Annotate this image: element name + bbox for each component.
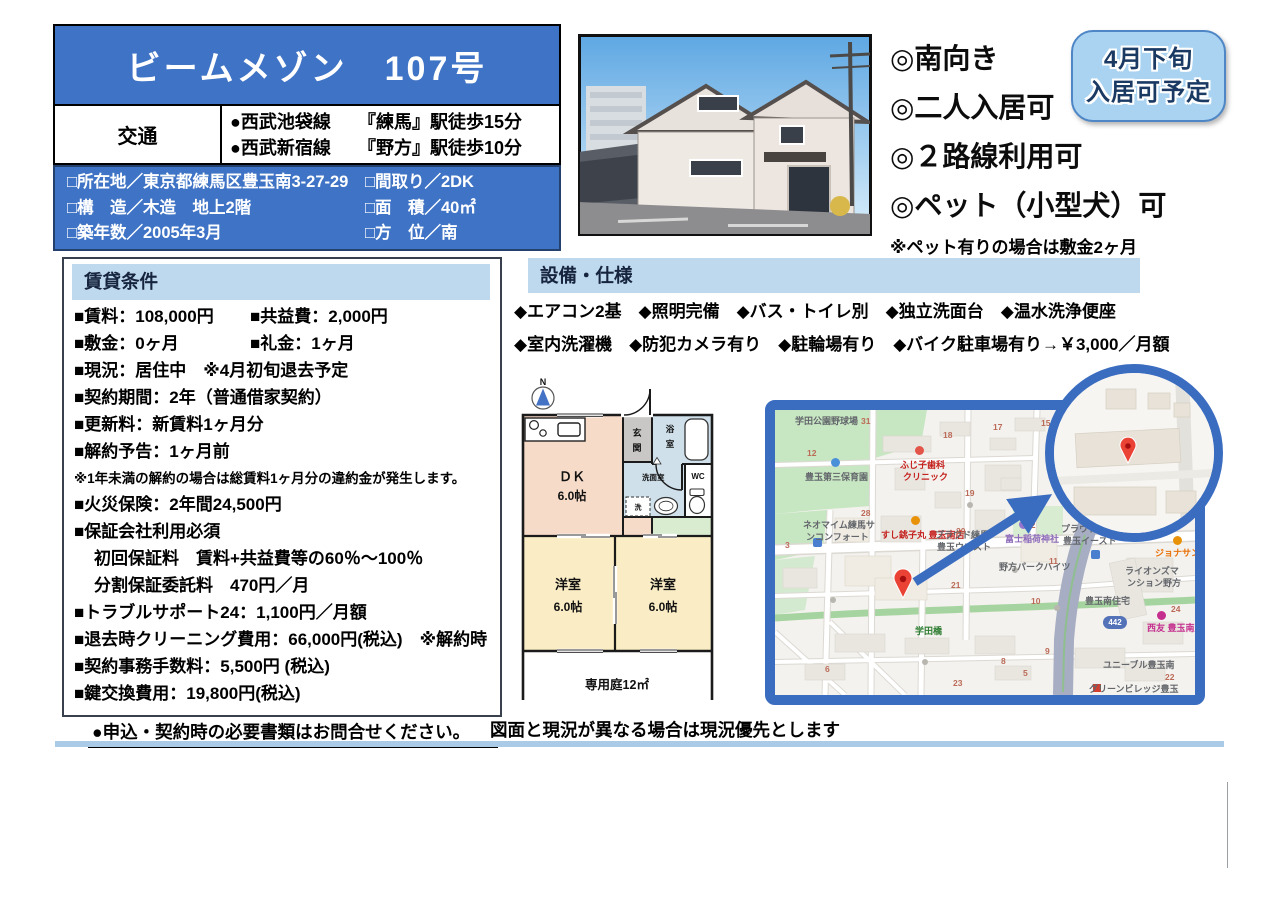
map-label: 野方パークハイツ	[999, 562, 1070, 572]
detail-layout: □間取り／2DK	[365, 170, 476, 196]
deposit: ■敷金：0ヶ月	[74, 330, 250, 357]
map-number: 18	[943, 430, 952, 440]
map-number: 8	[1001, 656, 1006, 666]
bottom-divider	[55, 741, 1224, 747]
detail-direction: □方 位／南	[365, 221, 476, 247]
station-walk: 『野方』駅徒歩10分	[358, 135, 522, 161]
inset-map	[1054, 373, 1214, 533]
access-label: 交通	[55, 106, 222, 163]
access-line: ●西武池袋線 『練馬』駅徒歩15分	[230, 109, 559, 135]
map-number: 6	[825, 664, 830, 674]
floor-plan: N ＤＫ 6.0帖 玄 関 浴 室 洗面室 洗 WC 洋室 6.0帖 洋室 6.…	[520, 356, 716, 700]
badge-line1: 4月下旬	[1104, 43, 1193, 76]
map-number: 21	[951, 580, 960, 590]
washer-label: 洗	[635, 503, 642, 512]
map-label: ユニーブル豊玉南	[1103, 660, 1174, 670]
room-label-dk: ＤＫ	[559, 469, 585, 484]
key-money: ■礼金：1ヶ月	[250, 334, 355, 353]
rental-row: ■退去時クリーニング費用：66,000円(税込) ※解約時	[74, 626, 494, 653]
map-label: 西友 豊玉南店	[1147, 623, 1204, 633]
rental-row: ■更新料：新賃料1ヶ月分	[74, 411, 494, 438]
property-details: □所在地／東京都練馬区豊玉南3-27-29 □構 造／木造 地上2階 □築年数／…	[53, 165, 561, 251]
detail-built: □築年数／2005年3月	[67, 221, 348, 247]
rental-rows: ■賃料：108,000円■共益費：2,000円 ■敷金：0ヶ月■礼金：1ヶ月 ■…	[74, 303, 494, 707]
rental-row: ■現況：居住中 ※4月初旬退去予定	[74, 357, 494, 384]
restaurant-icon	[1173, 536, 1182, 545]
rental-row: ■鍵交換費用：19,800円(税込)	[74, 680, 494, 707]
move-in-badge: 4月下旬 入居可予定	[1071, 30, 1226, 122]
rental-row: 初回保証料 賃料+共益費等の60％～100％	[74, 545, 494, 572]
map-number: 23	[953, 678, 962, 688]
room-label-entrance: 関	[632, 443, 641, 453]
map-label: ンション野方	[1127, 578, 1181, 588]
map-label: 豊玉第三保育園	[805, 472, 868, 482]
map-label: ネオマイム練馬サ	[803, 520, 875, 530]
rental-note: ※1年未満の解約の場合は総賃料1ヶ月分の違約金が発生します。	[74, 466, 494, 491]
map-label: 豊玉南住宅	[1085, 596, 1130, 606]
room-label-bath: 室	[666, 439, 675, 449]
bus-stop-icon	[1091, 550, 1100, 559]
feature-item: ◎２路線利用可	[890, 132, 1220, 181]
map-number: 3	[785, 540, 790, 550]
rental-row: ■火災保険：2年間24,500円	[74, 491, 494, 518]
map-label: 豊玉ウエスト	[937, 542, 991, 552]
room-label-wc: WC	[691, 472, 705, 481]
dental-clinic-icon	[915, 446, 924, 455]
detail-location: □所在地／東京都練馬区豊玉南3-27-29	[67, 170, 348, 196]
rental-conditions-header: 賃貸条件	[72, 264, 490, 300]
feature-item: ◎ペット（小型犬）可	[890, 181, 1220, 230]
rental-row: ■契約期間：2年（普通借家契約）	[74, 384, 494, 411]
rental-conditions-box: 賃貸条件 ■賃料：108,000円■共益費：2,000円 ■敷金：0ヶ月■礼金：…	[62, 257, 502, 717]
thin-vertical-line	[1227, 782, 1228, 868]
map-number: 22	[1165, 672, 1174, 682]
map-number: 17	[993, 422, 1002, 432]
rental-row: ■トラブルサポート24：1,100円／月額	[74, 599, 494, 626]
compass-north-label: N	[540, 377, 547, 387]
sushi-icon	[911, 516, 920, 525]
map-number: 20	[956, 526, 965, 536]
room-label-washroom: 洗面室	[642, 472, 665, 482]
map-label: ジョナサン	[1155, 548, 1200, 558]
building-photo	[578, 34, 872, 236]
details-col1: □所在地／東京都練馬区豊玉南3-27-29 □構 造／木造 地上2階 □築年数／…	[67, 170, 348, 247]
access-lines: ●西武池袋線 『練馬』駅徒歩15分 ●西武新宿線 『野方』駅徒歩10分	[222, 106, 559, 163]
access-line: ●西武新宿線 『野方』駅徒歩10分	[230, 135, 559, 161]
map-number: 24	[1171, 604, 1180, 614]
property-title-bar: ビームメゾン 107号	[55, 26, 559, 106]
rent: ■賃料：108,000円	[74, 303, 250, 330]
room-size-west2: 6.0帖	[649, 599, 678, 614]
map-label: ンコンフォート	[806, 532, 869, 542]
map-label: 学田公園野球場	[795, 416, 858, 426]
rental-row: 分割保証委託料 470円／月	[74, 572, 494, 599]
map-label: 学田橋	[915, 626, 942, 636]
rail-name: ●西武新宿線	[230, 135, 358, 161]
map-label: 富士稲荷神社	[1005, 534, 1059, 544]
room-size-west1: 6.0帖	[554, 599, 583, 614]
map-number: 11	[1049, 556, 1058, 566]
route-badge: 442	[1103, 616, 1127, 629]
badge-line2: 入居可予定	[1086, 76, 1211, 109]
rental-row: ■解約予告：1ヶ月前	[74, 438, 494, 465]
rail-name: ●西武池袋線	[230, 109, 358, 135]
room-label-bath: 浴	[666, 424, 675, 434]
feature-note: ※ペット有りの場合は敷金2ヶ月	[890, 233, 1220, 258]
map-number: 12	[807, 448, 816, 458]
rental-row: ■賃料：108,000円■共益費：2,000円	[74, 303, 494, 330]
equipment-line2: ◆室内洗濯機 ◆防犯カメラ有り ◆駐輪場有り ◆バイク駐車場有り→￥3,000／…	[514, 330, 1194, 355]
nursery-icon	[831, 458, 840, 467]
equipment-line1: ◆エアコン2基 ◆照明完備 ◆バス・トイレ別 ◆独立洗面台 ◆温水洗浄便座	[514, 297, 1194, 322]
map-label: グリーンビレッジ豊玉	[1089, 684, 1179, 694]
equipment-header: 設備・仕様	[528, 258, 1140, 293]
property-header-table: ビームメゾン 107号 交通 ●西武池袋線 『練馬』駅徒歩15分 ●西武新宿線 …	[53, 24, 561, 165]
map-number: 12	[1026, 520, 1035, 530]
map-label: ふじ子歯科	[900, 460, 945, 470]
map-number: 5	[1023, 668, 1028, 678]
map-number: 19	[965, 488, 974, 498]
map-zoom-inset	[1045, 364, 1223, 542]
common-fee: ■共益費：2,000円	[250, 307, 388, 326]
garden-label: 専用庭12㎡	[585, 677, 649, 692]
rental-row: ■保証会社利用必須	[74, 518, 494, 545]
map-number: 28	[861, 508, 870, 518]
flyer-page: ビームメゾン 107号 交通 ●西武池袋線 『練馬』駅徒歩15分 ●西武新宿線 …	[0, 0, 1280, 906]
details-col2: □間取り／2DK □面 積／40㎡ □方 位／南	[365, 170, 476, 247]
detail-area: □面 積／40㎡	[365, 196, 476, 222]
detail-structure: □構 造／木造 地上2階	[67, 196, 348, 222]
room-label-west2: 洋室	[650, 577, 676, 592]
room-label-west1: 洋室	[555, 577, 581, 592]
disclaimer-note: 図面と現況が異なる場合は現況優先とします	[490, 717, 840, 742]
room-label-entrance: 玄	[632, 427, 641, 438]
map-label: クリニック	[903, 472, 948, 482]
rental-row: ■敷金：0ヶ月■礼金：1ヶ月	[74, 330, 494, 357]
page-title: ビームメゾン 107号	[127, 41, 488, 90]
supermarket-icon	[1157, 611, 1166, 620]
map-number: 31	[861, 416, 870, 426]
map-label: ライオンズマ	[1125, 566, 1179, 576]
rental-row: ■契約事務手数料：5,500円 (税込)	[74, 653, 494, 680]
map-number: 9	[1045, 646, 1050, 656]
room-size-dk: 6.0帖	[558, 488, 587, 503]
map-number: 10	[1031, 596, 1040, 606]
station-walk: 『練馬』駅徒歩15分	[358, 109, 522, 135]
access-row: 交通 ●西武池袋線 『練馬』駅徒歩15分 ●西武新宿線 『野方』駅徒歩10分	[55, 106, 559, 163]
